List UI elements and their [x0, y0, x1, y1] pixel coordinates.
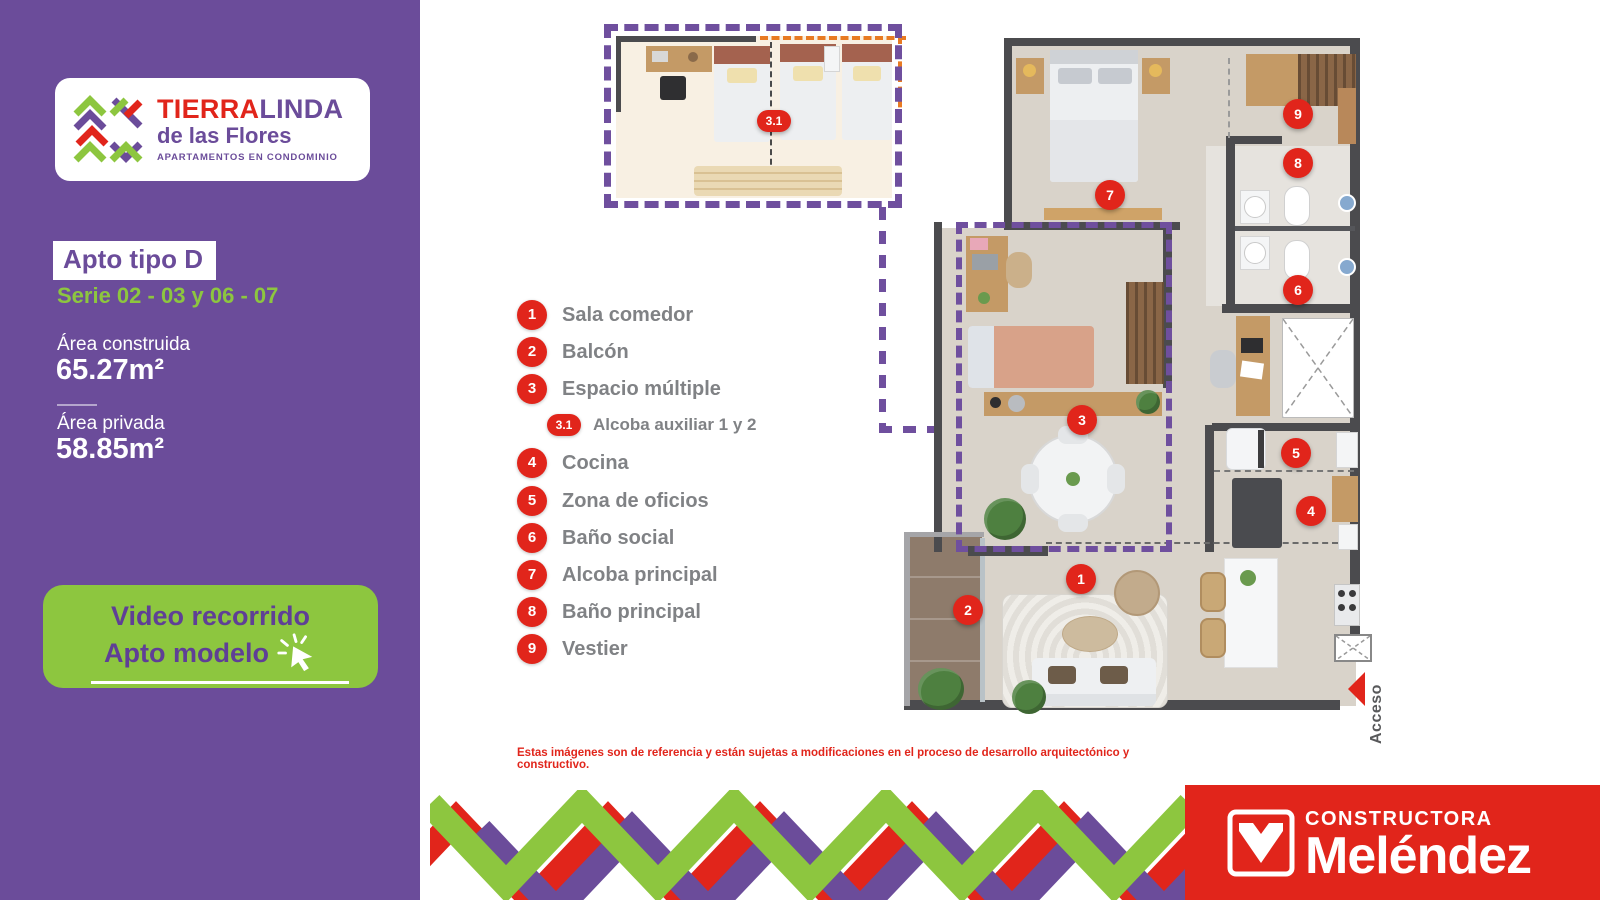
legend-badge-2: 2	[517, 337, 547, 367]
disclaimer-text: Estas imágenes son de referencia y están…	[517, 747, 1177, 771]
melendez-text-block: CONSTRUCTORA Meléndez	[1305, 809, 1531, 882]
legend-item-5: 5Zona de oficios	[517, 486, 709, 516]
legend-badge-1: 1	[517, 300, 547, 330]
legend-badge-7: 7	[517, 560, 547, 590]
legend-label-3: Espacio múltiple	[562, 378, 721, 401]
legend-label-6: Baño social	[562, 527, 674, 550]
legend-label-8: Baño principal	[562, 601, 701, 624]
wall-espacio-left	[934, 222, 942, 552]
plan-badge-9: 9	[1283, 99, 1313, 129]
brand-name-linda: LINDA	[259, 94, 343, 124]
wall-top	[1004, 38, 1360, 46]
sofa-pillow-1	[1048, 666, 1076, 684]
closet-1	[1246, 54, 1298, 106]
washing-machine-panel	[1258, 430, 1264, 468]
bath6-toilet	[1284, 240, 1310, 280]
plan-badge-2: 2	[953, 595, 983, 625]
video-button-underline	[91, 681, 349, 684]
legend-label-7: Alcoba principal	[562, 564, 718, 587]
area-construida-label: Área construida	[57, 334, 190, 356]
click-cursor-icon	[275, 632, 317, 674]
legend-item-7: 7Alcoba principal	[517, 560, 718, 590]
brand-pattern-icon	[70, 92, 146, 168]
constructora-label: CONSTRUCTORA	[1305, 809, 1531, 829]
main-bed-pillow-1	[1058, 68, 1092, 84]
bath6-sink	[1244, 242, 1266, 264]
brand-logo-card: TIERRALINDA de las Flores APARTAMENTOS E…	[55, 78, 370, 181]
bath8-toilet	[1284, 186, 1310, 226]
balcony-left-wall	[904, 532, 910, 706]
brand-logo-text: TIERRALINDA de las Flores APARTAMENTOS E…	[157, 96, 343, 163]
video-button-line2: Apto modelo	[104, 638, 269, 669]
legend-label-9: Vestier	[562, 638, 628, 661]
burner-1	[1338, 590, 1345, 597]
sofa-back	[1032, 694, 1156, 706]
plan-badge-6: 6	[1283, 275, 1313, 305]
legend-item-1: 1Sala comedor	[517, 300, 693, 330]
burner-2	[1349, 590, 1356, 597]
main-bed-pillow-2	[1098, 68, 1132, 84]
legend-item-9: 9Vestier	[517, 634, 628, 664]
counter-dashed-line	[1214, 470, 1354, 472]
bath8-sink	[1244, 196, 1266, 218]
island-plant	[1240, 570, 1256, 586]
access-label: Acceso	[1368, 658, 1386, 744]
wall-left-upper	[1004, 38, 1012, 228]
access-arrow	[1348, 672, 1365, 706]
study-laptop	[1241, 338, 1263, 353]
entry-sink	[1334, 634, 1372, 662]
kitchen-cabinet	[1332, 476, 1358, 522]
aux-room-dashed-frame	[604, 24, 902, 208]
legend-item-4: 4Cocina	[517, 448, 629, 478]
constructora-melendez-banner: CONSTRUCTORA Meléndez	[1185, 785, 1600, 900]
espacio-dashed-frame	[956, 222, 1172, 552]
wall-kitchen-left	[1205, 425, 1214, 552]
bath6-shower-head	[1338, 258, 1356, 276]
legend-item-8: 8Baño principal	[517, 597, 701, 627]
entry-sink-x	[1336, 636, 1370, 660]
zigzag-pattern-band	[430, 790, 1185, 900]
wall-bath-divider	[1235, 226, 1355, 231]
video-button-line1: Video recorrido	[53, 601, 368, 632]
plan-badge-3: 3	[1067, 405, 1097, 435]
melendez-logo-icon	[1227, 809, 1295, 877]
plan-badge-7: 7	[1095, 180, 1125, 210]
wall-bath-bottom	[1222, 304, 1356, 313]
serie-subtitle: Serie 02 - 03 y 06 - 07	[57, 283, 278, 309]
lamp-right	[1149, 64, 1162, 77]
plan-badge-8: 8	[1283, 148, 1313, 178]
melendez-label: Meléndez	[1305, 830, 1531, 882]
legend-badge-5: 5	[517, 486, 547, 516]
legend-item-3-1: 3.1Alcoba auxiliar 1 y 2	[547, 414, 756, 436]
sala-palm-plant	[1012, 680, 1046, 714]
legend-badge-3: 3	[517, 374, 547, 404]
bath8-shower-head	[1338, 194, 1356, 212]
main-bed-blanket	[1050, 120, 1138, 182]
wall-bath-left	[1226, 140, 1235, 310]
void-x-lines	[1283, 319, 1353, 417]
accent-chair	[1114, 570, 1160, 616]
island-stool-2	[1200, 618, 1226, 658]
balcony-plant	[918, 668, 964, 710]
sidebar: TIERRALINDA de las Flores APARTAMENTOS E…	[0, 0, 420, 900]
island-stool-1	[1200, 572, 1226, 612]
void-shaft	[1282, 318, 1354, 418]
apto-type-title: Apto tipo D	[53, 241, 216, 280]
plan-badge-3-1: 3.1	[757, 110, 791, 132]
plan-badge-5: 5	[1281, 438, 1311, 468]
closet-3	[1338, 88, 1356, 144]
legend-label-5: Zona de oficios	[562, 490, 709, 513]
refrigerator	[1232, 478, 1282, 548]
lamp-left	[1023, 64, 1036, 77]
study-paper	[1240, 361, 1264, 380]
legend-label-1: Sala comedor	[562, 304, 693, 327]
sidebar-divider	[57, 404, 97, 406]
kitchen-sink	[1338, 524, 1358, 550]
brand-name: TIERRALINDA	[157, 96, 343, 123]
video-tour-button[interactable]: Video recorrido Apto modelo	[43, 585, 378, 688]
legend-label-4: Cocina	[562, 452, 629, 475]
bedroom-shelf	[1044, 208, 1162, 220]
vestier-dashed-line	[1228, 58, 1230, 138]
main-bed-headboard	[1050, 50, 1138, 64]
burner-3	[1338, 604, 1345, 611]
legend-badge-3-1: 3.1	[547, 414, 581, 436]
legend-item-6: 6Baño social	[517, 523, 674, 553]
legend-badge-8: 8	[517, 597, 547, 627]
area-privada-label: Área privada	[57, 413, 165, 435]
sofa-pillow-2	[1100, 666, 1128, 684]
connector-dashed-vertical	[879, 207, 886, 433]
brand-tagline: APARTAMENTOS EN CONDOMINIO	[157, 153, 343, 163]
area-privada-value: 58.85m²	[56, 433, 164, 466]
legend-badge-4: 4	[517, 448, 547, 478]
balcony-glass-door	[980, 538, 985, 702]
legend-label-2: Balcón	[562, 341, 629, 364]
legend-badge-6: 6	[517, 523, 547, 553]
plan-badge-4: 4	[1296, 496, 1326, 526]
brand-subtitle: de las Flores	[157, 125, 343, 147]
poster-canvas: TIERRALINDA de las Flores APARTAMENTOS E…	[0, 0, 1600, 900]
burner-4	[1349, 604, 1356, 611]
legend-badge-9: 9	[517, 634, 547, 664]
coffee-table	[1062, 616, 1118, 652]
area-construida-value: 65.27m²	[56, 354, 164, 387]
legend-item-3: 3Espacio múltiple	[517, 374, 721, 404]
utility-sink	[1336, 432, 1358, 468]
brand-name-tierra: TIERRA	[157, 94, 259, 124]
plan-badge-1: 1	[1066, 564, 1096, 594]
study-chair	[1210, 350, 1236, 388]
legend-label-3-1: Alcoba auxiliar 1 y 2	[593, 415, 756, 435]
legend-item-2: 2Balcón	[517, 337, 629, 367]
